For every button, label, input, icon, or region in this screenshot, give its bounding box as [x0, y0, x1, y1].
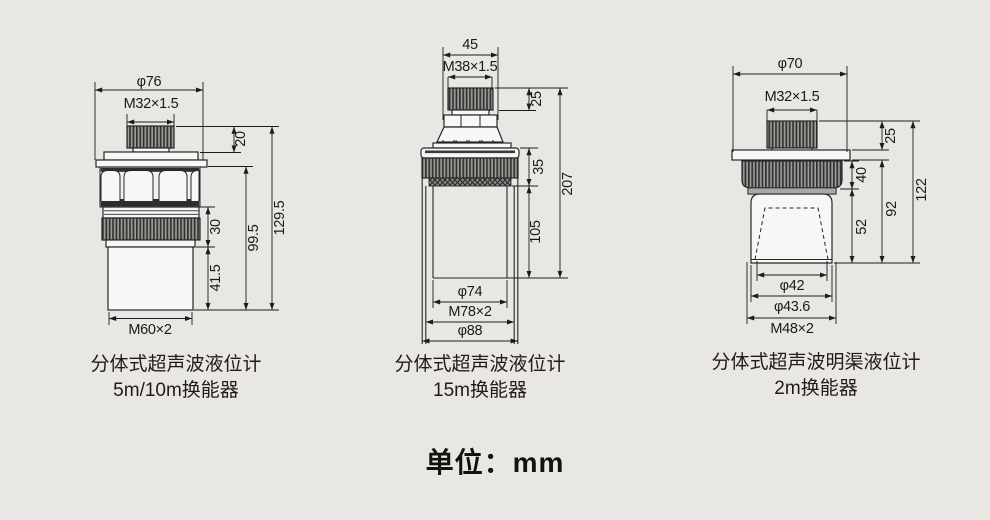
caption-5m10m-line2: 5m/10m换能器: [36, 378, 316, 404]
dim-flange-diameter: φ70: [778, 56, 803, 72]
caption-5m10m-line1: 分体式超声波液位计: [36, 352, 316, 378]
dim-total-height: 207: [560, 172, 576, 196]
dim-horn-diameter: φ42: [780, 278, 805, 294]
dim-tip-height: 41.5: [208, 264, 224, 291]
dim-total-height: 129.5: [272, 200, 288, 235]
caption-15m-line2: 15m换能器: [340, 378, 620, 404]
dim-top-thread: M38×1.5: [443, 59, 498, 75]
caption-2m-line2: 2m换能器: [676, 376, 956, 402]
dim-cap-height: 25: [883, 128, 899, 144]
dim-ring-height: 30: [208, 219, 224, 235]
sensor-drawing-5m10m: [96, 126, 207, 310]
caption-5m10m: 分体式超声波液位计 5m/10m换能器: [36, 352, 316, 404]
dim-body-thread: M60×2: [128, 322, 171, 338]
dim-tip-diameter: φ43.6: [774, 299, 810, 315]
dim-ring-height: 40: [854, 167, 870, 183]
caption-15m-line1: 分体式超声波液位计: [340, 352, 620, 378]
dim-horn-height: 52: [854, 219, 870, 235]
caption-2m: 分体式超声波明渠液位计 2m换能器: [676, 350, 956, 402]
dim-cap-height: 20: [233, 131, 249, 147]
dim-top-thread: M32×1.5: [124, 96, 179, 112]
sensor-drawing-2m: [732, 121, 850, 263]
dim-body-thread: M78×2: [448, 304, 491, 320]
unit-label: 单位：mm: [0, 441, 990, 481]
dim-total-height: 122: [914, 178, 930, 202]
dim-ring-height: 35: [531, 159, 547, 175]
caption-2m-line1: 分体式超声波明渠液位计: [676, 350, 956, 376]
dim-outer-diameter: φ88: [458, 323, 483, 339]
dim-body-thread: M48×2: [770, 321, 813, 337]
dim-lower-height: 92: [884, 201, 900, 217]
sensor-dimlabels-15m: 45 M38×1.5 25 35 105 207 φ74 M78×2 φ88: [443, 37, 576, 339]
dim-cap-height: 25: [529, 91, 545, 107]
caption-15m: 分体式超声波液位计 15m换能器: [340, 352, 620, 404]
sensor-dimlines-15m: [422, 47, 568, 341]
dim-lower-height: 99.5: [246, 224, 262, 251]
dim-top-width: 45: [462, 37, 478, 53]
dim-bore-depth: 105: [528, 220, 544, 244]
dim-top-thread: M32×1.5: [765, 89, 820, 105]
dim-flange-diameter: φ76: [137, 74, 162, 90]
dim-inner-diameter: φ74: [458, 284, 483, 300]
